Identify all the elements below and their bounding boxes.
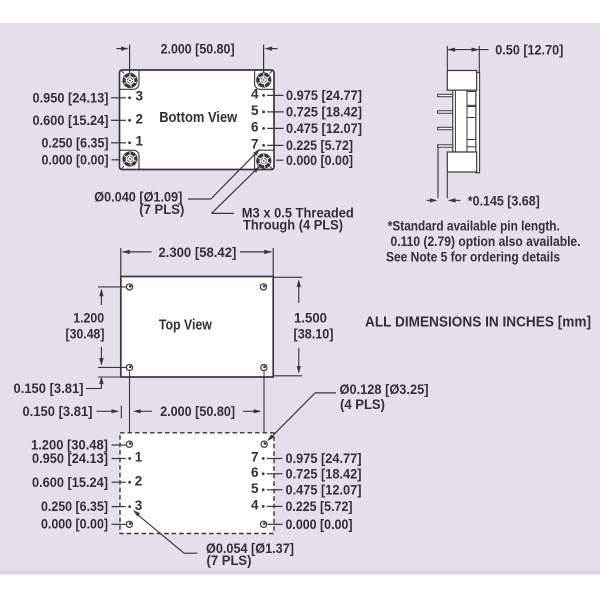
- svg-text:Through (4 PLS): Through (4 PLS): [243, 218, 343, 233]
- svg-text:See Note 5 for ordering detail: See Note 5 for ordering details: [386, 250, 560, 265]
- svg-text:Bottom View: Bottom View: [159, 109, 237, 126]
- svg-text:0.250 [6.35]: 0.250 [6.35]: [41, 499, 108, 514]
- svg-text:2.300 [58.42]: 2.300 [58.42]: [158, 245, 236, 260]
- svg-text:0.725 [18.42]: 0.725 [18.42]: [286, 466, 362, 481]
- svg-text:0.475 [12.07]: 0.475 [12.07]: [286, 482, 362, 497]
- svg-text:2: 2: [136, 111, 144, 126]
- svg-text:0.150 [3.81]: 0.150 [3.81]: [23, 404, 93, 419]
- svg-text:4: 4: [251, 87, 259, 102]
- svg-text:7: 7: [251, 137, 259, 152]
- svg-text:6: 6: [251, 120, 259, 135]
- svg-text:0.000 [0.00]: 0.000 [0.00]: [286, 517, 353, 532]
- svg-text:1: 1: [135, 450, 143, 465]
- svg-text:1: 1: [136, 134, 144, 149]
- svg-text:0.950 [24.13]: 0.950 [24.13]: [32, 451, 108, 466]
- svg-text:[38.10]: [38.10]: [294, 327, 334, 342]
- svg-text:0.000 [0.00]: 0.000 [0.00]: [41, 517, 108, 532]
- svg-text:(7 PLS): (7 PLS): [207, 553, 252, 568]
- svg-text:0.000 [0.00]: 0.000 [0.00]: [286, 153, 353, 168]
- svg-text:0.50 [12.70]: 0.50 [12.70]: [495, 43, 563, 58]
- svg-text:[30.48]: [30.48]: [66, 327, 105, 342]
- svg-text:5: 5: [251, 481, 259, 496]
- svg-text:3: 3: [136, 89, 144, 104]
- svg-text:0.150 [3.81]: 0.150 [3.81]: [14, 381, 84, 396]
- svg-text:0.600 [15.24]: 0.600 [15.24]: [33, 113, 109, 128]
- svg-text:0.225 [5.72]: 0.225 [5.72]: [286, 138, 353, 153]
- svg-text:0.950 [24.13]: 0.950 [24.13]: [33, 91, 109, 106]
- svg-text:0.225 [5.72]: 0.225 [5.72]: [286, 499, 353, 514]
- svg-text:2.000 [50.80]: 2.000 [50.80]: [161, 41, 235, 56]
- svg-text:2: 2: [135, 473, 143, 488]
- svg-text:2.000 [50.80]: 2.000 [50.80]: [160, 404, 235, 419]
- svg-text:6: 6: [251, 465, 259, 480]
- svg-text:1.500: 1.500: [294, 311, 327, 326]
- svg-text:0.600 [15.24]: 0.600 [15.24]: [32, 475, 108, 490]
- svg-text:0.250 [6.35]: 0.250 [6.35]: [42, 136, 109, 151]
- svg-text:0.975 [24.77]: 0.975 [24.77]: [286, 88, 362, 103]
- svg-text:1.200: 1.200: [73, 311, 104, 326]
- svg-text:0.975 [24.77]: 0.975 [24.77]: [286, 451, 362, 466]
- svg-text:4: 4: [251, 498, 259, 513]
- svg-text:0.110 (2.79) option also avail: 0.110 (2.79) option also available.: [391, 234, 581, 249]
- svg-text:Top View: Top View: [159, 317, 212, 334]
- svg-text:0.000 [0.00]: 0.000 [0.00]: [42, 152, 109, 167]
- svg-text:Ø0.128 [Ø3.25]: Ø0.128 [Ø3.25]: [340, 382, 429, 397]
- svg-text:7: 7: [251, 450, 259, 465]
- svg-text:(7 PLS): (7 PLS): [139, 202, 184, 217]
- svg-text:0.725 [18.42]: 0.725 [18.42]: [286, 105, 362, 120]
- svg-text:0.475 [12.07]: 0.475 [12.07]: [286, 121, 362, 136]
- svg-text:5: 5: [251, 103, 259, 118]
- svg-text:(4 PLS): (4 PLS): [340, 397, 385, 412]
- svg-text:3: 3: [135, 498, 143, 513]
- svg-text:*0.145 [3.68]: *0.145 [3.68]: [468, 193, 540, 208]
- svg-text:*Standard available pin length: *Standard available pin length.: [388, 219, 560, 234]
- svg-text:ALL DIMENSIONS IN INCHES [mm]: ALL DIMENSIONS IN INCHES [mm]: [365, 314, 591, 330]
